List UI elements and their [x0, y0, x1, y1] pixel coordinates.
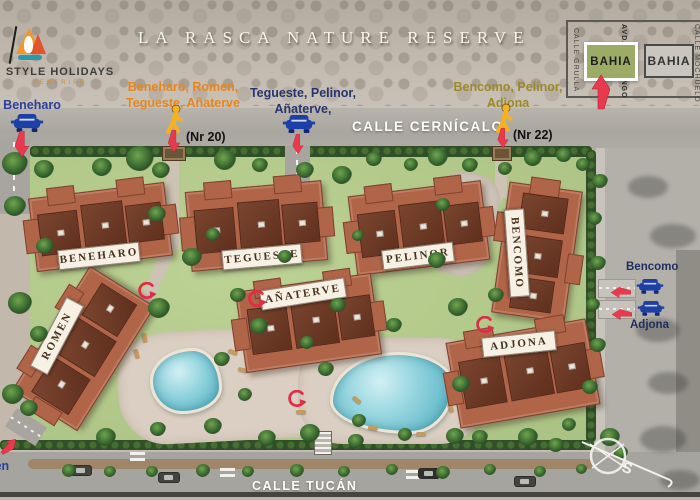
- palm-tree: [146, 466, 158, 477]
- tree-shadow: [628, 176, 668, 198]
- palm-tree: [436, 466, 450, 479]
- palm-tree: [518, 428, 538, 446]
- street-car: [514, 476, 536, 487]
- palm-tree: [448, 298, 468, 316]
- palm-tree: [588, 212, 602, 225]
- adjona-parking-label: Adjona: [630, 319, 669, 331]
- palm-tree: [290, 464, 304, 477]
- swimming-pool-west: [150, 348, 222, 414]
- south-hedge: [0, 440, 594, 450]
- romen-car-label: Romen: [0, 459, 10, 475]
- palm-tree: [498, 162, 512, 175]
- palm-tree: [484, 464, 496, 475]
- palm-tree: [338, 466, 350, 477]
- location-minimap: CALLE GRULLA AVDA. FLAMINGO CALLE MOCHUE…: [566, 20, 700, 98]
- palm-tree: [96, 428, 116, 446]
- arrow-down-nr22: [496, 128, 510, 153]
- nr20-gate-number: (Nr 20): [186, 130, 226, 144]
- sun-lounger: [416, 432, 426, 436]
- crosswalk: [220, 468, 235, 479]
- palm-tree: [34, 160, 54, 178]
- street-car: [158, 472, 180, 483]
- arrow-left-adjona: [607, 308, 632, 321]
- palm-tree: [428, 148, 448, 166]
- street-name-cernicalo: CALLE CERNÍCALO: [352, 119, 504, 134]
- crosswalk: [130, 452, 145, 463]
- palm-tree: [586, 298, 600, 311]
- arrow-left-bencomo: [606, 286, 631, 299]
- nr22-gate-number: (Nr 22): [513, 128, 553, 142]
- curved-arrow: [474, 316, 494, 341]
- palm-tree: [2, 384, 24, 404]
- palm-tree: [562, 418, 576, 431]
- minimap-street-mochuelo: CALLE MOCHUELO: [693, 24, 700, 103]
- palm-tree: [8, 292, 32, 314]
- logo-figure: [24, 36, 33, 53]
- palm-tree: [196, 464, 210, 477]
- palm-tree: [398, 428, 412, 441]
- tree-shadow: [648, 372, 688, 394]
- arrow-down-nr20: [167, 130, 181, 157]
- resort-site-map: BENEHARO TEGUESTE PELINOR BENCOMO ROMEN …: [0, 0, 700, 500]
- palm-tree: [126, 146, 154, 171]
- arrow-down-tegueste: [291, 134, 305, 159]
- minimap-here-arrow: [592, 74, 610, 110]
- curved-arrow: [286, 390, 306, 415]
- logo-wave: [18, 55, 42, 60]
- page-title: LA RASCA NATURE RESERVE: [138, 28, 530, 48]
- palm-tree: [4, 196, 26, 216]
- palm-tree: [576, 158, 590, 171]
- minimap-bahia-other: BAHIA: [644, 44, 694, 78]
- palm-tree: [206, 228, 220, 241]
- palm-tree: [386, 464, 398, 475]
- palm-tree: [436, 198, 450, 211]
- palm-tree: [62, 464, 76, 477]
- bencomo-parking-label: Bencomo: [626, 261, 678, 273]
- palm-tree: [548, 438, 564, 452]
- tree-shadow: [650, 224, 696, 248]
- palm-tree: [214, 150, 236, 170]
- arrow-down-beneharo: [14, 131, 30, 162]
- palm-tree: [104, 466, 116, 477]
- palm-tree: [332, 166, 352, 184]
- palm-tree: [534, 466, 546, 477]
- palm-tree: [300, 424, 320, 442]
- palm-tree: [352, 230, 364, 241]
- palm-tree: [404, 158, 418, 171]
- car-icon-bencomo: [636, 277, 664, 300]
- palm-tree: [182, 248, 202, 266]
- palm-tree: [238, 388, 252, 401]
- style-holidays-logo: STYLE HOLIDAYS TENERIFE: [0, 10, 130, 90]
- palm-tree: [300, 336, 314, 349]
- palm-tree: [278, 250, 292, 263]
- curved-arrow: [136, 282, 156, 307]
- curved-arrow: [246, 290, 266, 315]
- logo-name: STYLE HOLIDAYS: [0, 66, 128, 78]
- street-name-tucan: CALLE TUCÁN: [252, 479, 357, 493]
- palm-tree: [92, 158, 112, 176]
- palm-tree: [352, 414, 366, 427]
- palm-tree: [242, 466, 254, 477]
